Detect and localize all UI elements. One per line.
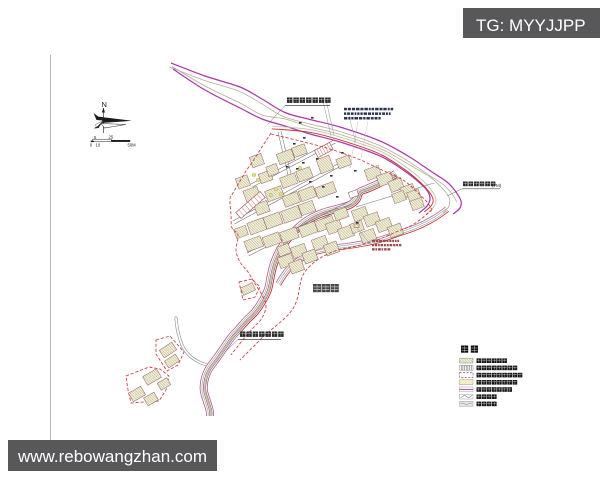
svg-text:10: 10 bbox=[96, 142, 101, 147]
svg-text:(7M): (7M) bbox=[492, 183, 502, 188]
svg-text:50M: 50M bbox=[128, 142, 137, 147]
svg-text:www.rebowangzhan.com: www.rebowangzhan.com bbox=[17, 447, 207, 466]
svg-text:25: 25 bbox=[109, 135, 114, 140]
svg-text:TG: MYYJJPP: TG: MYYJJPP bbox=[476, 16, 586, 35]
svg-text:N: N bbox=[102, 100, 107, 109]
